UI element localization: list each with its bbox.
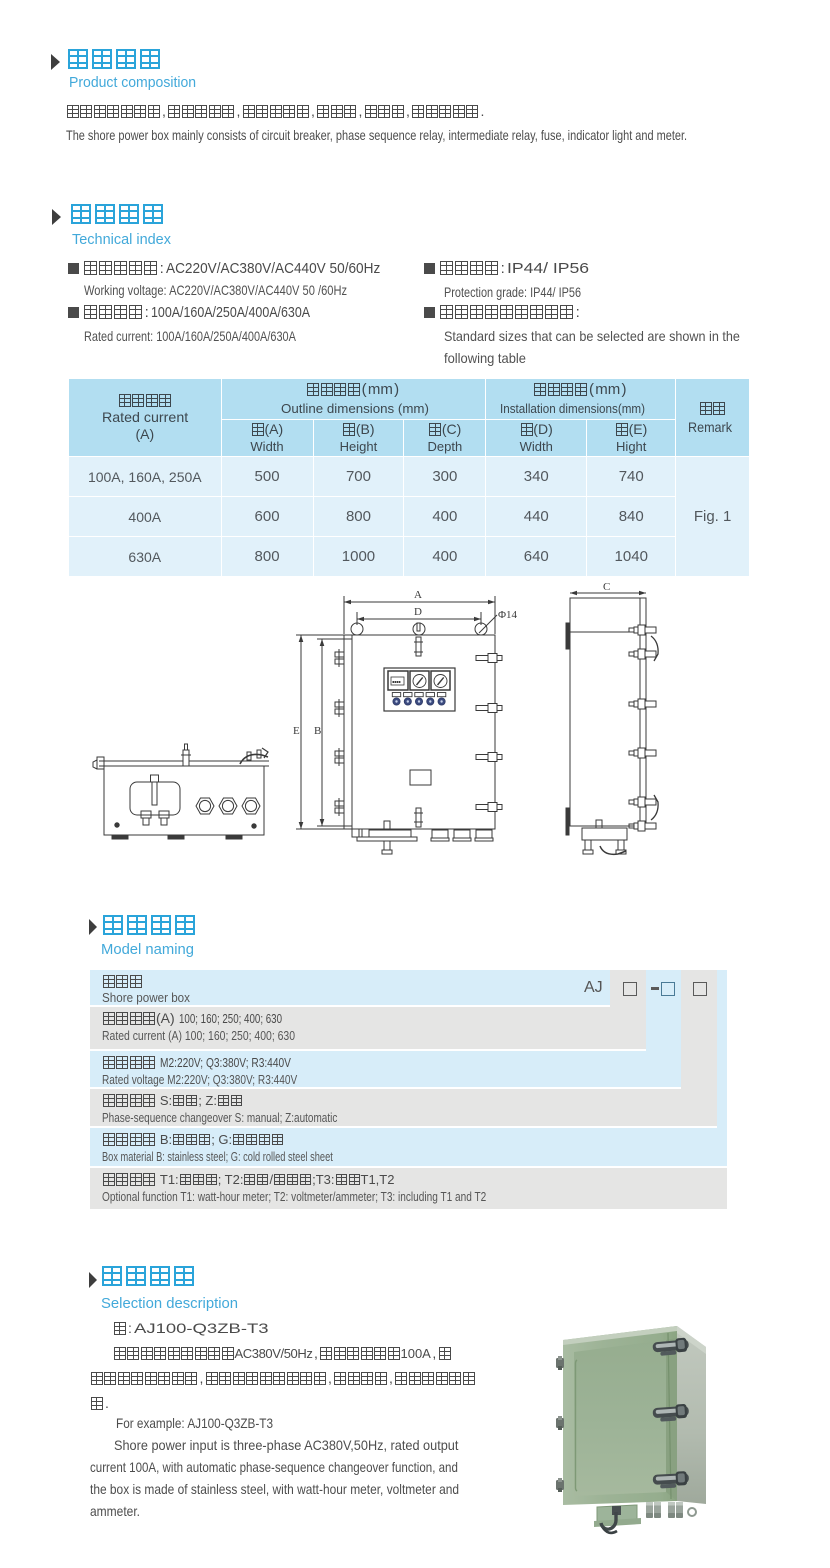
svg-text:C: C (603, 581, 610, 593)
svg-text:A: A (414, 589, 422, 601)
svg-text:E: E (293, 725, 300, 737)
svg-text:Φ14: Φ14 (498, 609, 518, 621)
svg-text:D: D (414, 606, 422, 618)
svg-text:B: B (314, 725, 321, 737)
